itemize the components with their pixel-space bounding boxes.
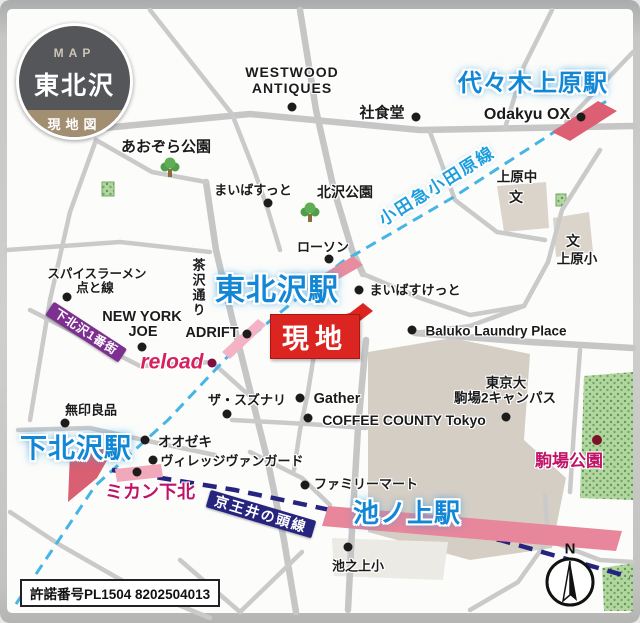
campus-label-line1: 東京大 bbox=[486, 376, 527, 390]
badge-kicker: MAP bbox=[19, 46, 130, 60]
school-label-ikenoue-es: 池之上小 bbox=[332, 560, 384, 573]
poi-label-spice-ramen-line2: 点と線 bbox=[76, 282, 114, 295]
poi-label-new-york: NEW YORK bbox=[102, 310, 182, 325]
compass-icon bbox=[547, 559, 593, 605]
school-label-uehara-es: 上原小 bbox=[557, 252, 598, 266]
campus-label-line2: 駒場2キャンパス bbox=[454, 391, 556, 405]
map-photo: 代々木上原駅 東北沢駅 下北沢駅 池ノ上駅 小田急小田原線 京王井の頭線 茶沢通… bbox=[0, 0, 640, 623]
poi-label-maibasutto: まいばすっと bbox=[214, 184, 291, 197]
poi-dot-oozeki bbox=[141, 436, 150, 445]
poi-dot-ikenoue-es bbox=[344, 543, 353, 552]
poi-label-adrift: ADRIFT bbox=[185, 326, 238, 341]
school-label-uehara-jhs: 上原中 bbox=[497, 170, 538, 184]
small-park-square bbox=[102, 182, 114, 196]
park-label-aozora: あおぞら公園 bbox=[121, 140, 211, 155]
school-symbol-icon: 文 bbox=[566, 234, 580, 248]
poi-dot-village-vanguard bbox=[149, 456, 158, 465]
license-number: 許諾番号PL1504 8202504013 bbox=[20, 579, 220, 607]
komaba-park-area bbox=[580, 372, 633, 500]
street-label-chazawa-dori: 茶沢通り bbox=[192, 258, 205, 318]
map-title-badge: MAP 東北沢 現地図 bbox=[16, 23, 133, 140]
badge-subtitle: 現地図 bbox=[19, 110, 130, 137]
poi-dot-gather bbox=[296, 394, 305, 403]
poi-dot-suzunari bbox=[223, 410, 232, 419]
poi-dot-familymart bbox=[301, 481, 310, 490]
poi-dot-westwood bbox=[288, 103, 297, 112]
poi-label-maibasketto: まいばすけっと bbox=[369, 284, 460, 297]
poi-label-mikan-shimokita: ミカン下北 bbox=[105, 483, 195, 501]
uehara-jhs-area bbox=[497, 182, 549, 232]
poi-dot-mujirushi bbox=[61, 419, 70, 428]
station-label-shimokitazawa: 下北沢駅 bbox=[20, 436, 132, 463]
badge-title: 東北沢 bbox=[19, 66, 130, 102]
poi-label-shashokudo: 社食堂 bbox=[359, 106, 404, 121]
poi-dot-maibasketto bbox=[355, 286, 364, 295]
poi-dot-maibasutto bbox=[264, 199, 273, 208]
poi-label-joe: JOE bbox=[128, 325, 157, 340]
poi-label-coffee-county: COFFEE COUNTY Tokyo bbox=[322, 413, 486, 427]
poi-dot-adrift bbox=[243, 330, 252, 339]
poi-label-gather: Gather bbox=[314, 392, 361, 407]
poi-label-mujirushi: 無印良品 bbox=[65, 404, 117, 417]
poi-dot-baluko bbox=[408, 326, 417, 335]
poi-dot-campus bbox=[502, 413, 511, 422]
poi-dot-komaba-park bbox=[592, 435, 602, 445]
poi-dot-reload bbox=[208, 359, 217, 368]
poi-label-village-vanguard: ヴィレッジヴァンガード bbox=[160, 455, 303, 468]
poi-label-odakyu-ox: Odakyu OX bbox=[484, 107, 570, 123]
poi-dot-shashokudo bbox=[412, 113, 421, 122]
poi-dot-odakyu-ox bbox=[577, 113, 586, 122]
poi-label-suzunari: ザ・スズナリ bbox=[208, 394, 286, 407]
poi-label-baluko: Baluko Laundry Place bbox=[425, 324, 566, 338]
site-marker-box: 現地 bbox=[270, 314, 360, 359]
poi-dot-spice-ramen bbox=[63, 293, 72, 302]
poi-label-oozeki: オオゼキ bbox=[158, 435, 212, 449]
school-symbol-icon: 文 bbox=[509, 190, 523, 204]
poi-label-lawson: ローソン bbox=[297, 241, 349, 254]
green-area-bottom-right bbox=[602, 563, 633, 611]
station-label-higashi-kitazawa: 東北沢駅 bbox=[215, 276, 339, 306]
station-label-ikenoue: 池ノ上駅 bbox=[353, 500, 461, 526]
poi-dot-mikan bbox=[133, 468, 142, 477]
poi-dot-lawson bbox=[325, 255, 334, 264]
park-label-komaba: 駒場公園 bbox=[535, 453, 603, 470]
poi-label-westwood-line1: WESTWOOD bbox=[245, 65, 339, 79]
poi-label-familymart: ファミリーマート bbox=[314, 478, 418, 491]
poi-dot-coffee-county bbox=[304, 414, 313, 423]
poi-label-spice-ramen-line1: スパイスラーメン bbox=[47, 268, 146, 281]
park-label-kitazawa: 北沢公園 bbox=[317, 185, 373, 199]
poi-label-reload: reload bbox=[140, 352, 203, 373]
compass-north-label: N bbox=[565, 541, 576, 558]
poi-label-westwood-line2: ANTIQUES bbox=[252, 81, 332, 95]
station-label-yoyogi-uehara: 代々木上原駅 bbox=[458, 72, 608, 96]
